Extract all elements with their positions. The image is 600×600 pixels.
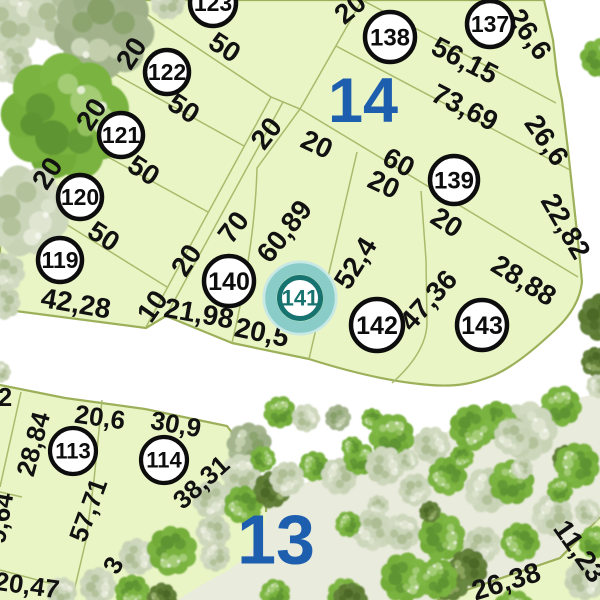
svg-text:139: 139 [434,167,474,194]
svg-text:121: 121 [102,122,141,148]
svg-text:122: 122 [148,59,186,85]
svg-text:114: 114 [146,448,182,473]
svg-text:141: 141 [282,286,319,311]
svg-text:14: 14 [328,66,398,136]
svg-text:123: 123 [194,0,232,16]
svg-text:2: 2 [0,382,12,412]
svg-text:143: 143 [461,312,503,340]
svg-text:137: 137 [471,11,509,37]
svg-text:138: 138 [370,24,410,51]
svg-text:113: 113 [55,439,91,464]
svg-text:142: 142 [356,312,398,340]
svg-text:140: 140 [208,268,250,296]
svg-text:13: 13 [237,501,315,579]
svg-text:120: 120 [61,184,99,210]
svg-text:119: 119 [41,247,78,273]
